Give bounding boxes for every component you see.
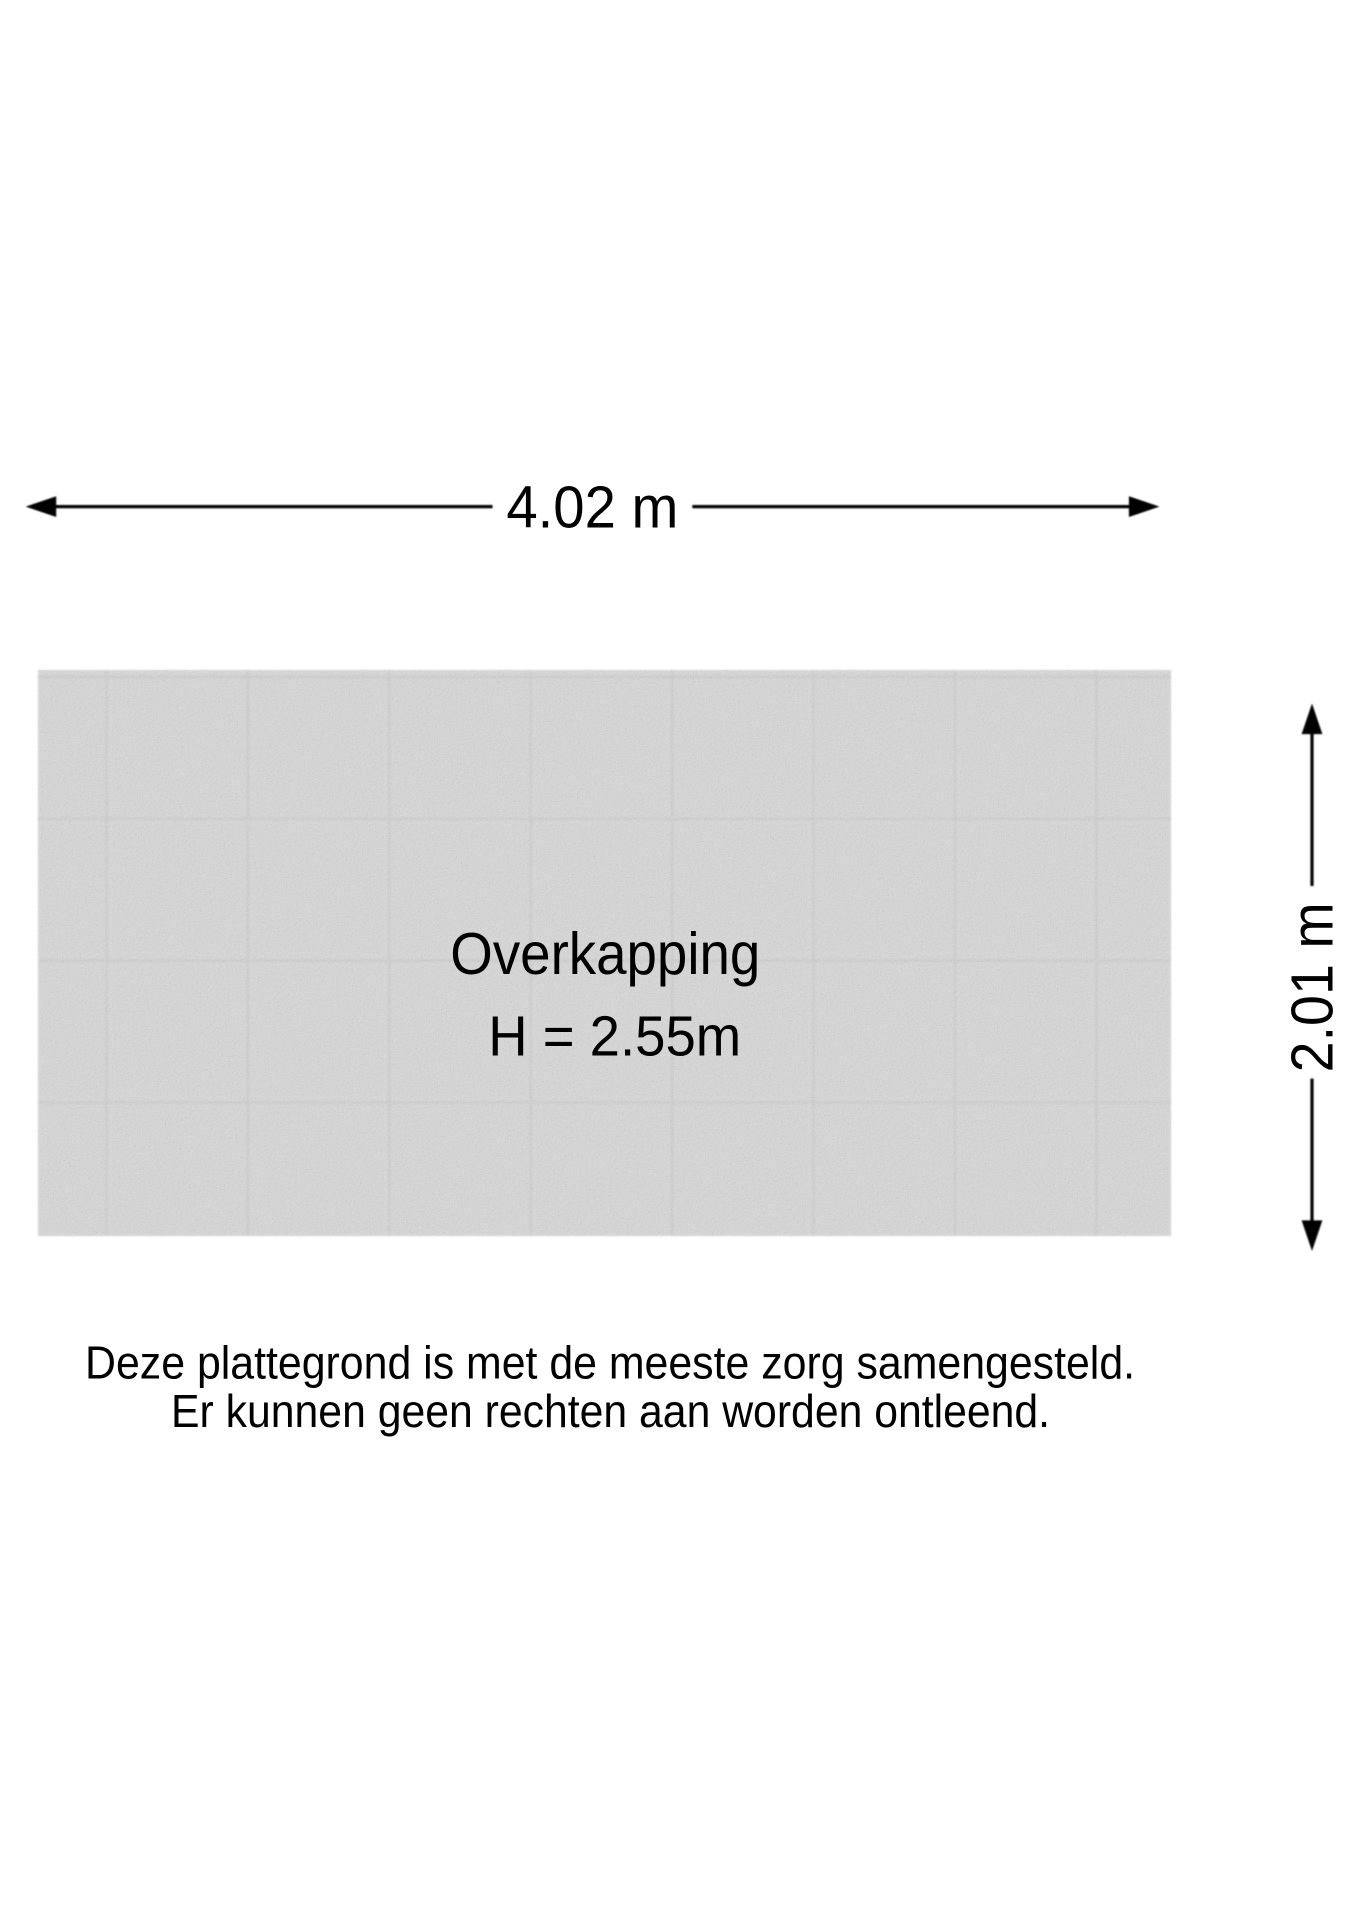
- svg-text:H = 2.55m: H = 2.55m: [488, 1005, 741, 1068]
- svg-text:Er kunnen geen rechten aan wor: Er kunnen geen rechten aan worden ontlee…: [171, 1385, 1050, 1437]
- svg-text:Overkapping: Overkapping: [450, 921, 760, 987]
- svg-text:4.02 m: 4.02 m: [506, 474, 678, 540]
- svg-text:Deze plattegrond is met de mee: Deze plattegrond is met de meeste zorg s…: [85, 1337, 1135, 1389]
- svg-text:2.01 m: 2.01 m: [1279, 902, 1345, 1072]
